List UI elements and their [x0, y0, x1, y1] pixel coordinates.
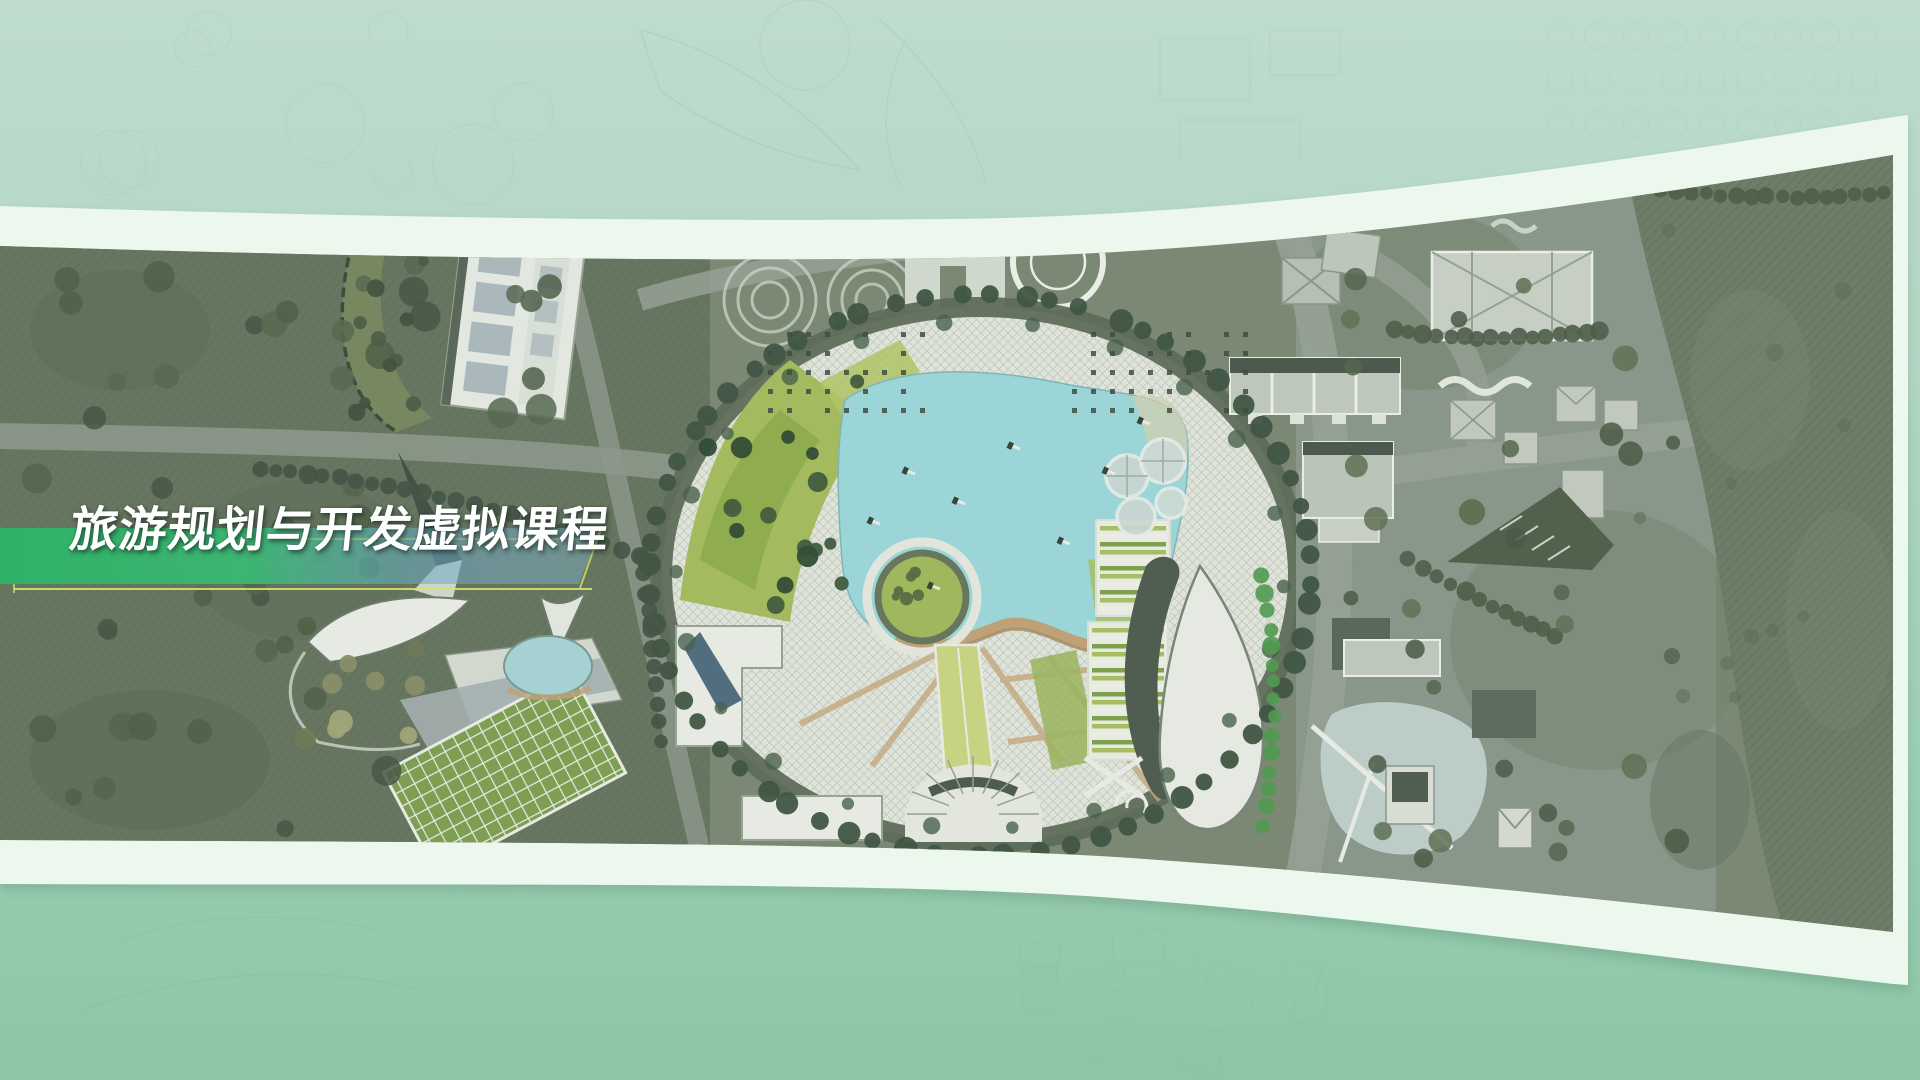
- course-title: 旅游规划与开发虚拟课程: [67, 503, 693, 559]
